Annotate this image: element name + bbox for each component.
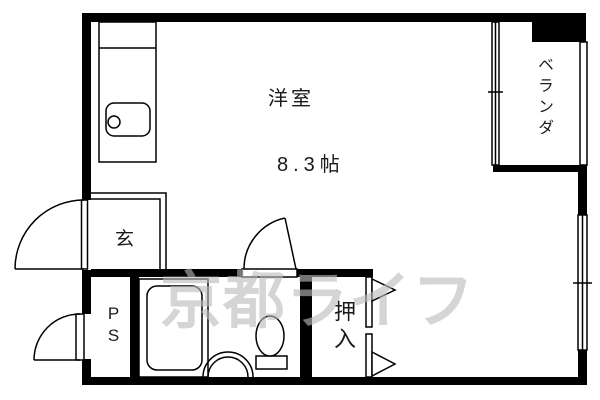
veranda-label: ベランダ [531,56,555,156]
closet-label: 押入 [327,300,359,354]
kitchen-counter [99,22,156,162]
entrance-label: 玄 [115,224,134,251]
interior-door-leaf [285,218,296,269]
closet-arrow-top [372,279,395,301]
toilet-tank [256,356,287,369]
entrance-door-leaf [82,200,88,269]
pipe-space-label: PS [103,304,123,348]
main-room-label: 洋室 [268,82,368,111]
entrance-door-arc [15,200,84,269]
closet-door-upper [366,277,372,327]
closet-arrow-bottom [372,352,395,376]
bath-door-arc-outer [203,352,253,377]
fixtures-layer [0,0,600,400]
closet-door-lower [366,334,372,377]
floor-plan: 洋室 8.3帖 玄 ベランダ PS 押入 京都ライフ [0,0,600,400]
ps-door-arc [34,314,80,360]
sink-faucet [108,116,120,128]
ps-door-leaf [76,314,84,360]
bath-door-arc-inner [208,357,248,377]
veranda-outer-wall [580,42,587,165]
toilet-bowl [256,316,284,356]
interior-door-threshold [242,269,297,277]
kitchen-sink [106,103,150,136]
room-size-label: 8.3帖 [277,148,345,177]
bathtub-outer [139,279,208,377]
interior-door-arc [244,218,285,269]
bathtub-inner [147,286,202,370]
